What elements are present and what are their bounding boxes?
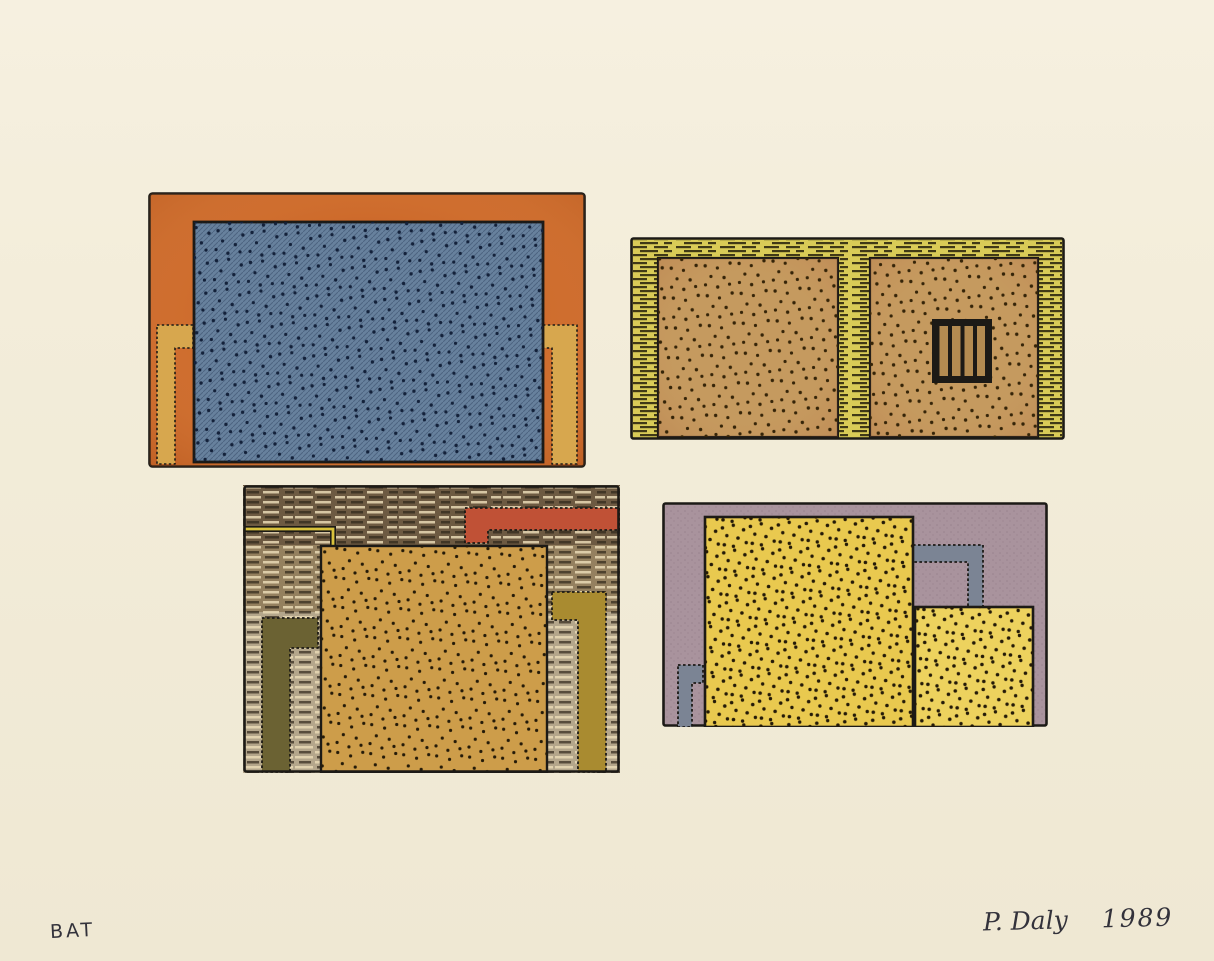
small-yellow-dotted-square <box>915 607 1033 727</box>
artist-signature: P. Daly 1989 <box>983 903 1174 937</box>
proof-inscription: BAT <box>49 919 95 943</box>
paper-sheet: BAT P. Daly 1989 <box>0 0 1214 961</box>
panel-striped-ochre <box>243 485 620 773</box>
left-tan-square <box>658 258 838 437</box>
ochre-dotted-square <box>321 546 547 772</box>
panel-orange-blue <box>148 192 586 468</box>
signature-year: 1989 <box>1101 903 1173 934</box>
signature-name: P. Daly <box>983 905 1068 936</box>
panel-adobe-window <box>630 237 1065 440</box>
panel-mauve-yellow <box>662 502 1048 727</box>
big-yellow-dotted-square <box>705 517 913 727</box>
blue-dotted-field <box>194 222 543 462</box>
barred-window <box>932 319 992 383</box>
